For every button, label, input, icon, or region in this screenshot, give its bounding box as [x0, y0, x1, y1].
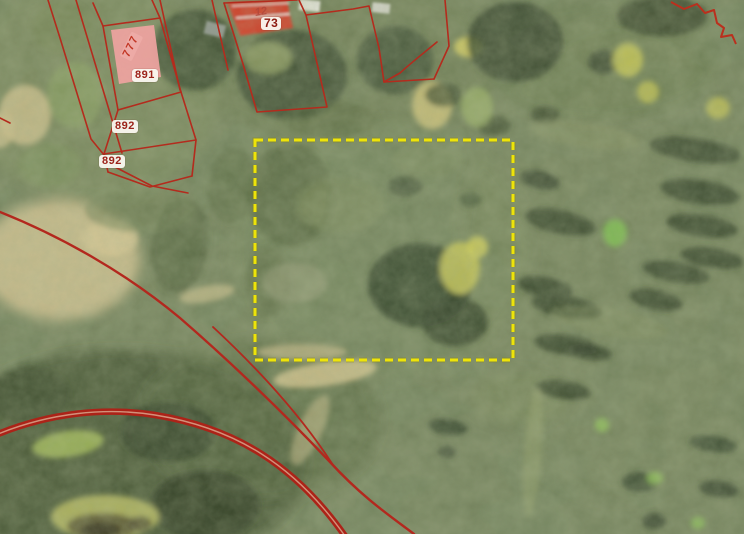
parcel-label-73: 73: [261, 17, 281, 30]
parcel-label-892-lower: 892: [99, 155, 125, 168]
parcel-label-892-upper: 892: [112, 120, 138, 133]
aerial-map-canvas: 777 891 892 892 12 73: [0, 0, 744, 534]
parcel-label-891: 891: [132, 69, 158, 82]
aerial-photo-layer: [0, 0, 744, 534]
